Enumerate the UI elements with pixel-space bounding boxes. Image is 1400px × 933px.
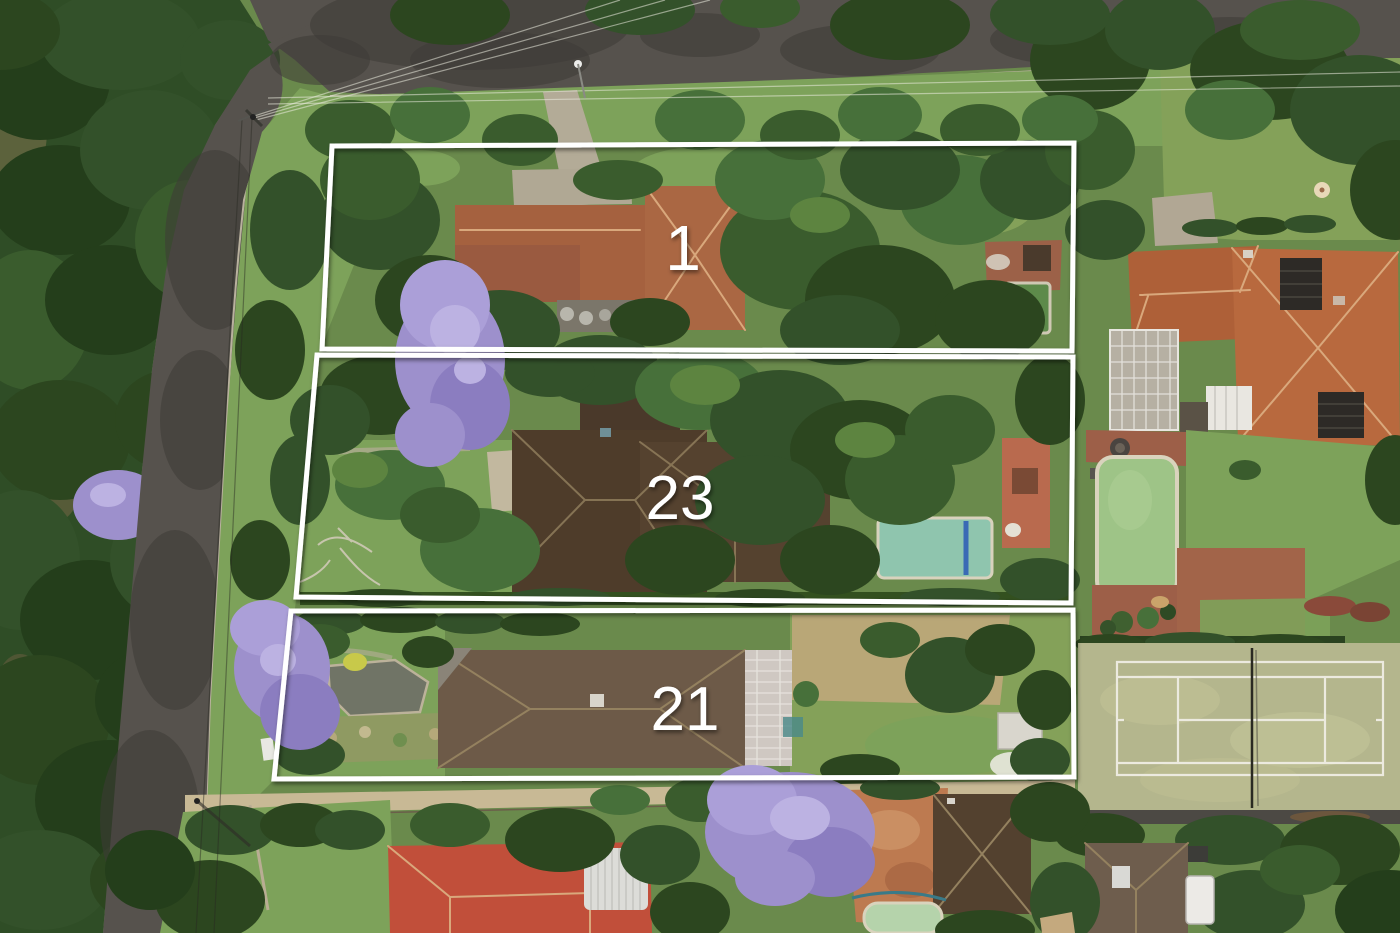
conservatory [1110,330,1178,430]
lot-label-21: 21 [651,675,720,744]
lot23-pool [878,518,992,578]
bottom-pool [864,903,942,933]
red-flower-hedge [1304,596,1356,616]
dark-car [1188,846,1208,862]
aerial-photo: 1 23 21 [0,0,1400,933]
yellow-bush [343,653,367,671]
chimney [590,694,604,707]
lot-label-1: 1 [665,212,701,284]
lot21-pergola [745,650,792,766]
round-bush [793,681,819,707]
tennis-court [1078,643,1400,813]
aerial-photo-stage: 1 23 21 [0,0,1400,933]
neighbor-courtyard [1152,192,1218,246]
white-van [1186,876,1214,924]
solar-panels-2 [1318,392,1364,438]
lot-label-23: 23 [646,464,715,533]
power-pole [250,114,256,120]
white-awning [1206,386,1252,430]
